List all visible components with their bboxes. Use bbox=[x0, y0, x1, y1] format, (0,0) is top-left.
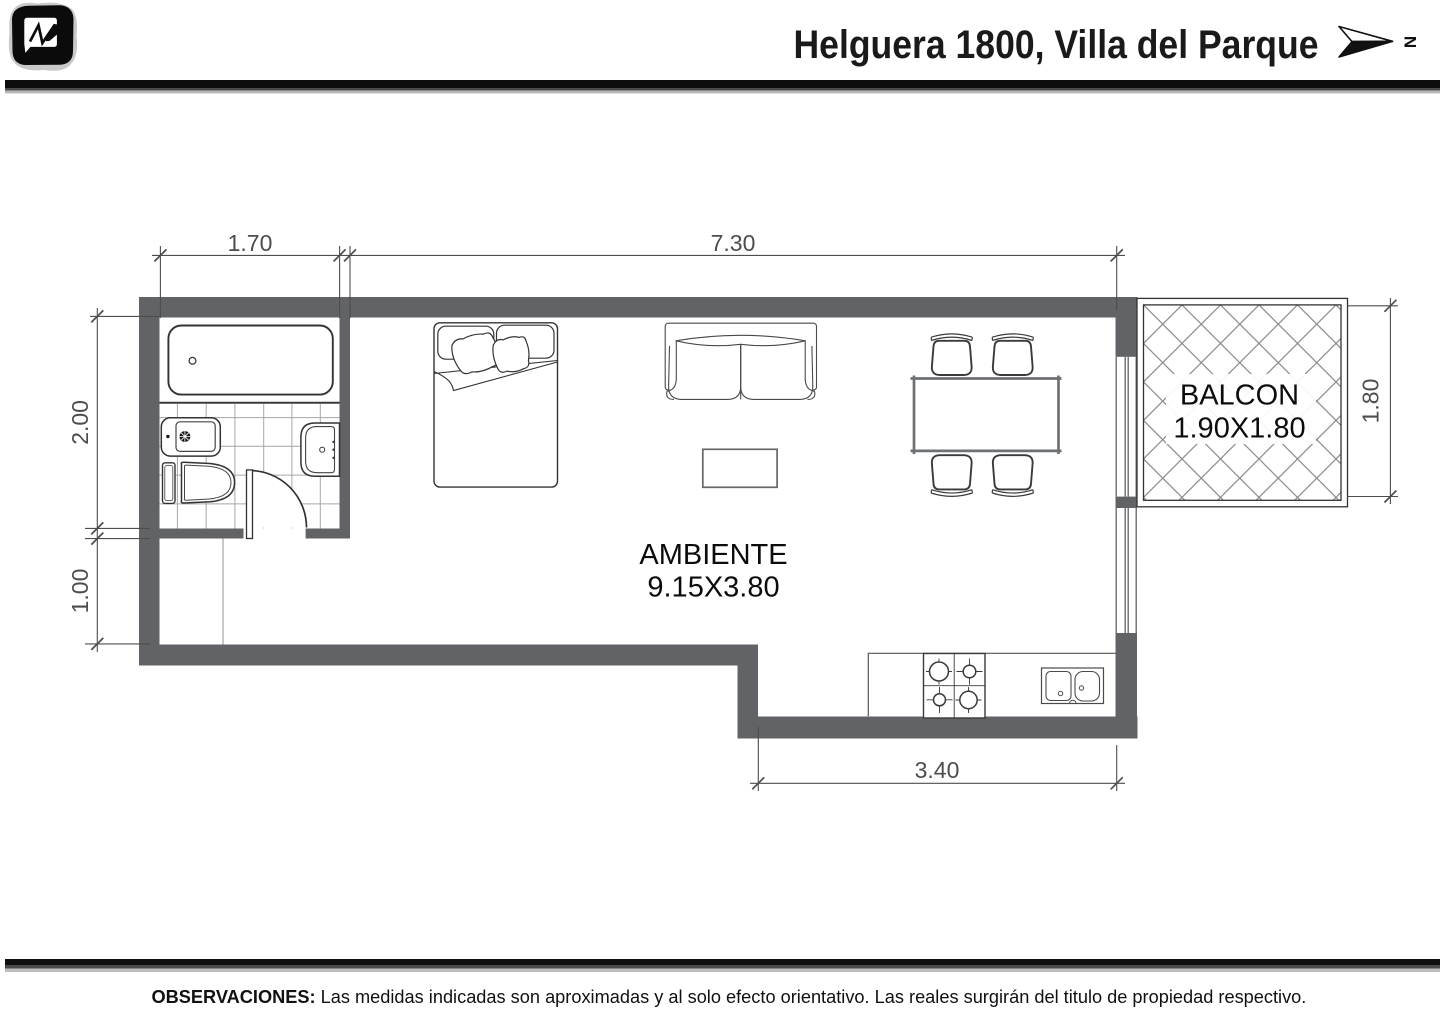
svg-text:Helguera 1800, Villa del Parqu: Helguera 1800, Villa del Parque bbox=[794, 23, 1319, 67]
svg-text:N: N bbox=[1401, 36, 1420, 48]
svg-text:1.90X1.80: 1.90X1.80 bbox=[1173, 413, 1305, 445]
svg-text:BALCON: BALCON bbox=[1180, 380, 1299, 412]
svg-text:1.80: 1.80 bbox=[1358, 379, 1384, 424]
svg-text:AMBIENTE: AMBIENTE bbox=[639, 539, 787, 571]
svg-text:7.30: 7.30 bbox=[711, 230, 756, 256]
svg-text:9.15X3.80: 9.15X3.80 bbox=[647, 572, 779, 604]
svg-text:1.00: 1.00 bbox=[67, 569, 93, 614]
svg-text:1.70: 1.70 bbox=[228, 230, 273, 256]
svg-text:3.40: 3.40 bbox=[915, 757, 960, 783]
svg-text:OBSERVACIONES: Las medidas ind: OBSERVACIONES: Las medidas indicadas son… bbox=[152, 987, 1307, 1007]
svg-text:2.00: 2.00 bbox=[67, 400, 93, 445]
